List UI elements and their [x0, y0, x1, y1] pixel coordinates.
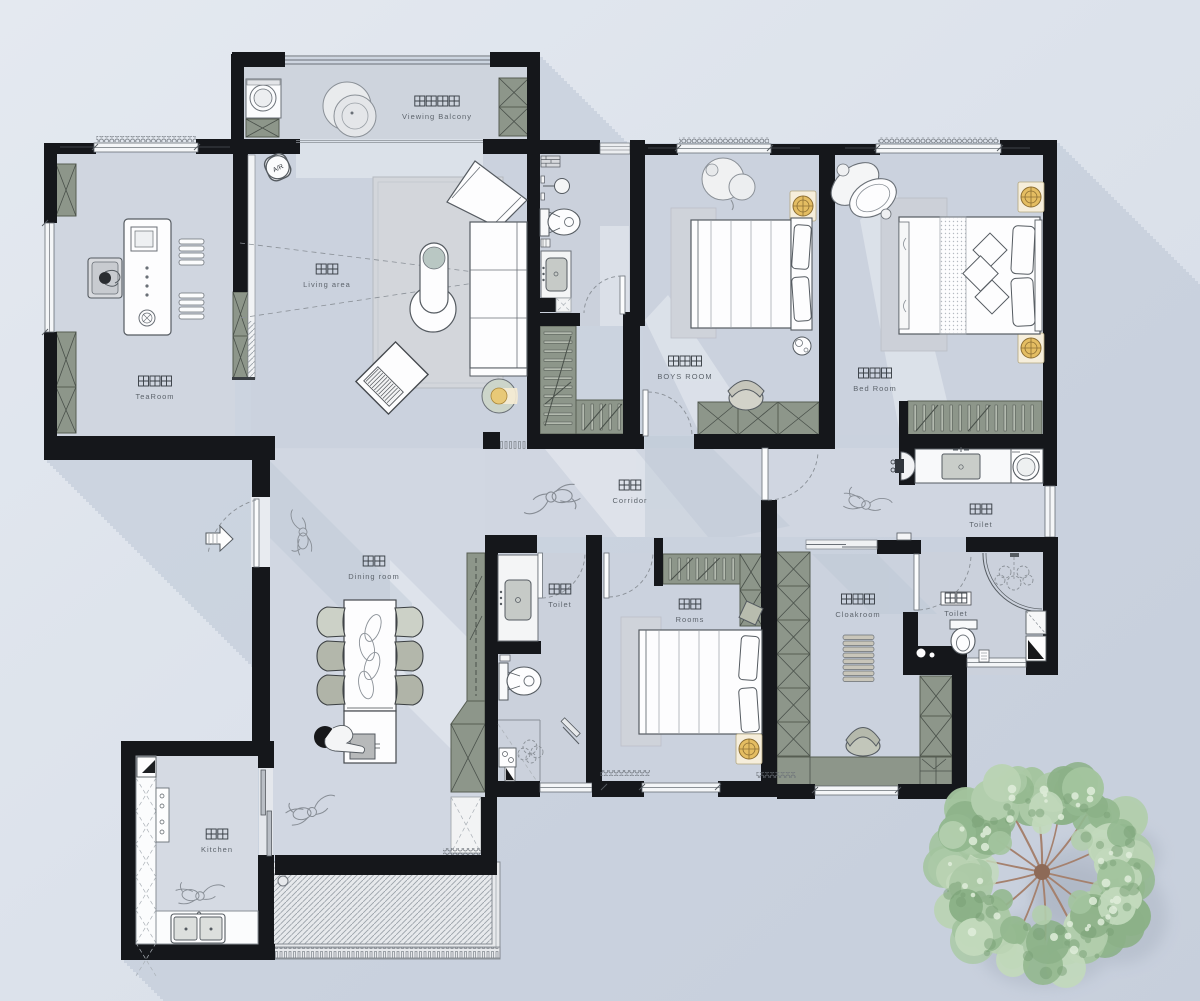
- svg-text:Toilet: Toilet: [969, 520, 993, 529]
- svg-text:Dining room: Dining room: [348, 572, 399, 581]
- svg-text:Living area: Living area: [303, 280, 351, 289]
- svg-text:Kitchen: Kitchen: [201, 845, 233, 854]
- svg-text:Viewing Balcony: Viewing Balcony: [402, 112, 472, 121]
- svg-text:Cloakroom: Cloakroom: [835, 610, 880, 619]
- svg-text:Toilet: Toilet: [548, 600, 572, 609]
- svg-text:Bed Room: Bed Room: [853, 384, 896, 393]
- svg-text:Rooms: Rooms: [676, 615, 705, 624]
- svg-text:Toilet: Toilet: [944, 609, 968, 618]
- svg-text:Corridor: Corridor: [612, 496, 647, 505]
- svg-text:TeaRoom: TeaRoom: [135, 392, 174, 401]
- svg-text:BOYS ROOM: BOYS ROOM: [657, 372, 712, 381]
